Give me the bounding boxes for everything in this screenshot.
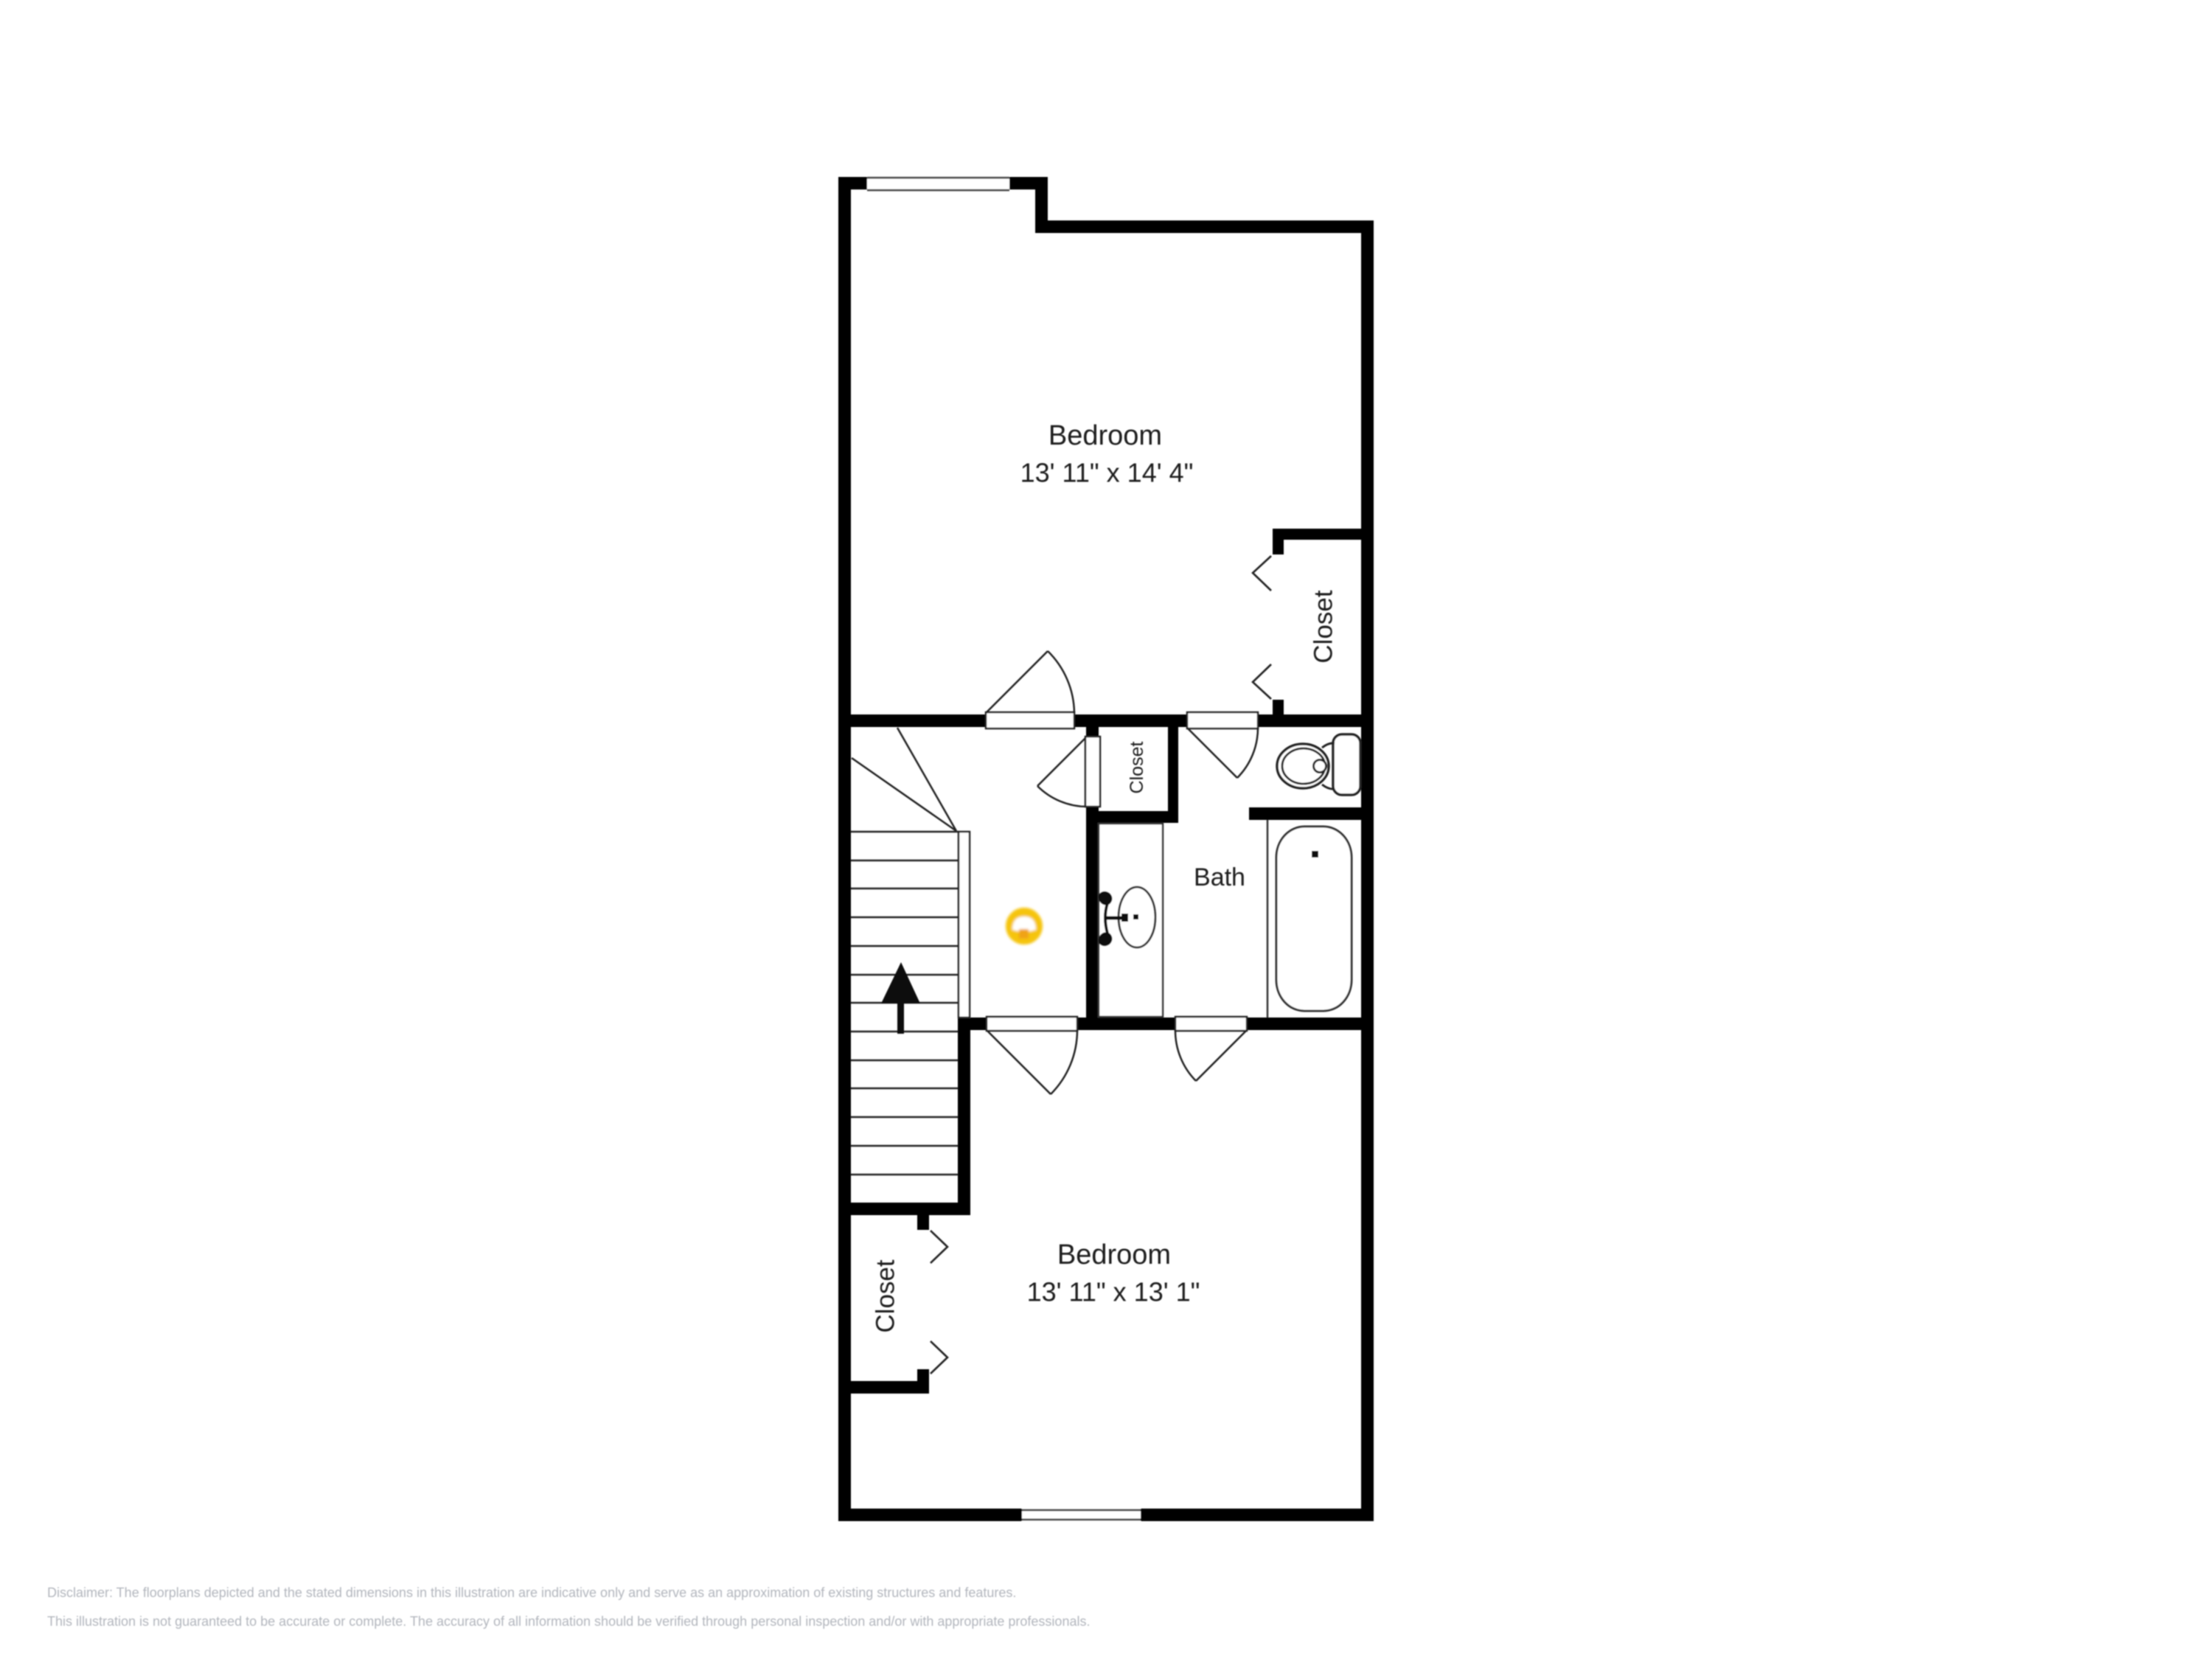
svg-text:Bath: Bath — [1194, 863, 1245, 891]
svg-text:13' 11" x 14' 4": 13' 11" x 14' 4" — [1020, 458, 1194, 488]
svg-text:Closet: Closet — [1127, 742, 1147, 794]
svg-text:Disclaimer: The floorplans dep: Disclaimer: The floorplans depicted and … — [47, 1585, 1016, 1600]
svg-text:Closet: Closet — [872, 1259, 900, 1332]
svg-text:Bedroom: Bedroom — [1048, 420, 1162, 451]
svg-text:13' 11" x 13' 1": 13' 11" x 13' 1" — [1027, 1277, 1200, 1307]
svg-text:Closet: Closet — [1310, 590, 1338, 663]
svg-text:This illustration is not guara: This illustration is not guaranteed to b… — [47, 1614, 1090, 1629]
svg-text:Bedroom: Bedroom — [1057, 1239, 1171, 1270]
